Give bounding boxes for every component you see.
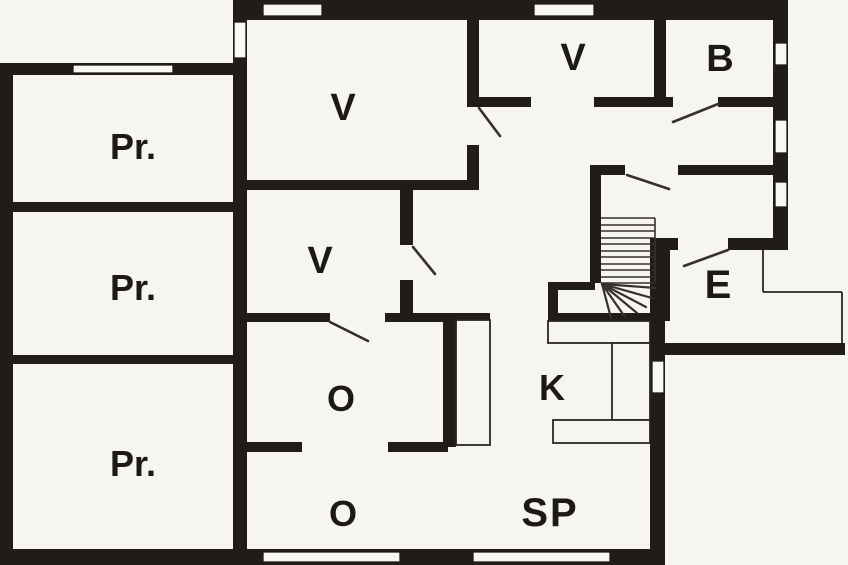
cupboard: [456, 320, 490, 445]
room-label-o-lower: O: [329, 493, 357, 534]
window-top-1: [263, 4, 322, 16]
room-label-pr-1: Pr.: [110, 126, 156, 167]
room-label-o-upper: O: [327, 378, 355, 419]
wall-hall-south-a: [590, 165, 625, 175]
wall-hall-south-b: [678, 165, 777, 175]
window-right-3: [775, 182, 787, 207]
window-bottom-2: [473, 552, 610, 562]
floor-plan-drawing: Pr. Pr. Pr. V V V B E K O O SP: [0, 0, 848, 565]
window-bottom-1: [263, 552, 400, 562]
room-label-k: K: [539, 367, 565, 408]
counter-right: [612, 343, 650, 420]
room-label-pr-2: Pr.: [110, 267, 156, 308]
room-label-v-middle: V: [307, 240, 333, 282]
wall-central-vertical: [233, 0, 247, 557]
window-central-wall: [234, 22, 246, 58]
floor-plan: Pr. Pr. Pr. V V V B E K O O SP: [0, 0, 848, 565]
wall-o-o-a: [245, 442, 302, 452]
room-label-e: E: [705, 263, 734, 307]
wall-v-center-right-upper: [467, 20, 479, 107]
wall-pr2-pr3: [13, 355, 245, 364]
wall-e-top-b: [728, 238, 788, 250]
window-right-2: [775, 120, 787, 153]
wall-under-v-right-a: [479, 97, 531, 107]
wall-stair-left: [590, 165, 601, 283]
wall-porch-bottom: [660, 343, 845, 355]
counter-bottom: [553, 420, 650, 443]
wall-o-top-a: [242, 313, 330, 322]
room-label-sp: SP: [521, 491, 578, 535]
window-right-1: [775, 43, 787, 65]
window-right-4: [652, 361, 664, 393]
wall-under-b: [718, 97, 788, 107]
room-label-v-top-center: V: [330, 87, 356, 129]
wall-o-right: [443, 318, 456, 447]
wall-v-mid-right-upper: [400, 190, 413, 245]
wall-under-v-right-b: [594, 97, 673, 107]
wall-pr1-pr2: [13, 202, 245, 212]
room-label-b: B: [706, 38, 733, 80]
wall-v-b-divider: [654, 20, 666, 97]
wall-closet-left: [548, 282, 558, 318]
window-left-wing: [73, 65, 173, 73]
room-label-pr-3: Pr.: [110, 443, 156, 484]
room-label-v-top-right: V: [560, 37, 586, 79]
window-top-2: [534, 4, 594, 16]
counter-top: [548, 321, 650, 343]
wall-left: [0, 63, 13, 565]
wall-v-center-bottom: [242, 180, 479, 190]
wall-o-o-b: [388, 442, 448, 452]
